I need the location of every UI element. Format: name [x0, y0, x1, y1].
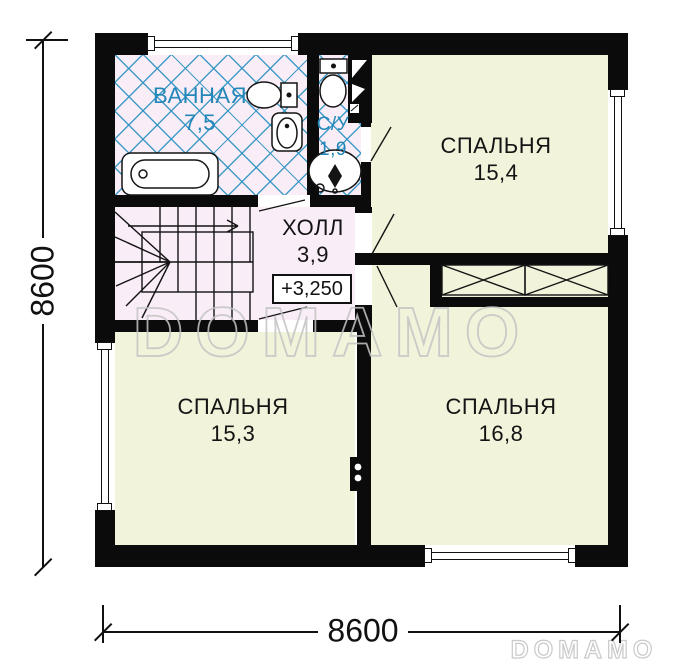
label-hall: ХОЛЛ 3,9 [273, 214, 353, 268]
dimension-extension-line [102, 605, 104, 643]
door-leaf-bathroom [259, 200, 305, 211]
room-area: 15,3 [173, 420, 293, 447]
dimension-extension-line [619, 605, 621, 643]
wardrobe-icon [442, 265, 608, 295]
dimension-value-left: 8600 [25, 245, 62, 316]
room-name: ХОЛЛ [273, 214, 353, 241]
room-name: СПАЛЬНЯ [173, 393, 293, 420]
dimension-line-bottom [408, 631, 620, 633]
dimension-line-bottom [103, 631, 318, 633]
label-bedroom-bottom-left: СПАЛЬНЯ 15,3 [173, 393, 293, 447]
room-area: 3,9 [273, 241, 353, 268]
dimension-line-left [42, 40, 44, 238]
elevation-badge: +3,250 [272, 274, 352, 304]
stairs-up-arrow-icon [128, 220, 238, 232]
label-bedroom-top-right: СПАЛЬНЯ 15,4 [436, 132, 556, 186]
watermark-bottom-right: DOMAMO [511, 636, 658, 664]
plan-linework: DOMAMO DOMAMO [0, 0, 674, 669]
floor-plan: DOMAMO DOMAMO ВАННАЯ 7,5 С/У 1,9 ХОЛЛ 3,… [0, 0, 674, 669]
door-leaf-wc [371, 127, 391, 161]
watermark-center: DOMAMO [133, 293, 532, 371]
room-area: 7,5 [140, 109, 260, 136]
room-name: ВАННАЯ [140, 82, 260, 109]
label-wc: С/У 1,9 [303, 112, 363, 162]
dimension-value-bottom: 8600 [327, 613, 398, 650]
room-name: С/У [303, 112, 363, 137]
room-area: 15,4 [436, 159, 556, 186]
toilet-icon [320, 59, 347, 107]
door-leaf-bedroom-top-right [372, 214, 394, 254]
room-area: 1,9 [303, 137, 363, 162]
sink-icon [272, 113, 302, 151]
label-bedroom-bottom-right: СПАЛЬНЯ 16,8 [441, 393, 561, 447]
label-bathroom: ВАННАЯ 7,5 [140, 82, 260, 136]
room-name: СПАЛЬНЯ [441, 393, 561, 420]
room-area: 16,8 [441, 420, 561, 447]
dimension-line-left [42, 324, 44, 567]
bathtub-icon [122, 153, 218, 195]
room-name: СПАЛЬНЯ [436, 132, 556, 159]
flue-icon [350, 457, 366, 491]
dimension-extension-line [26, 39, 68, 41]
